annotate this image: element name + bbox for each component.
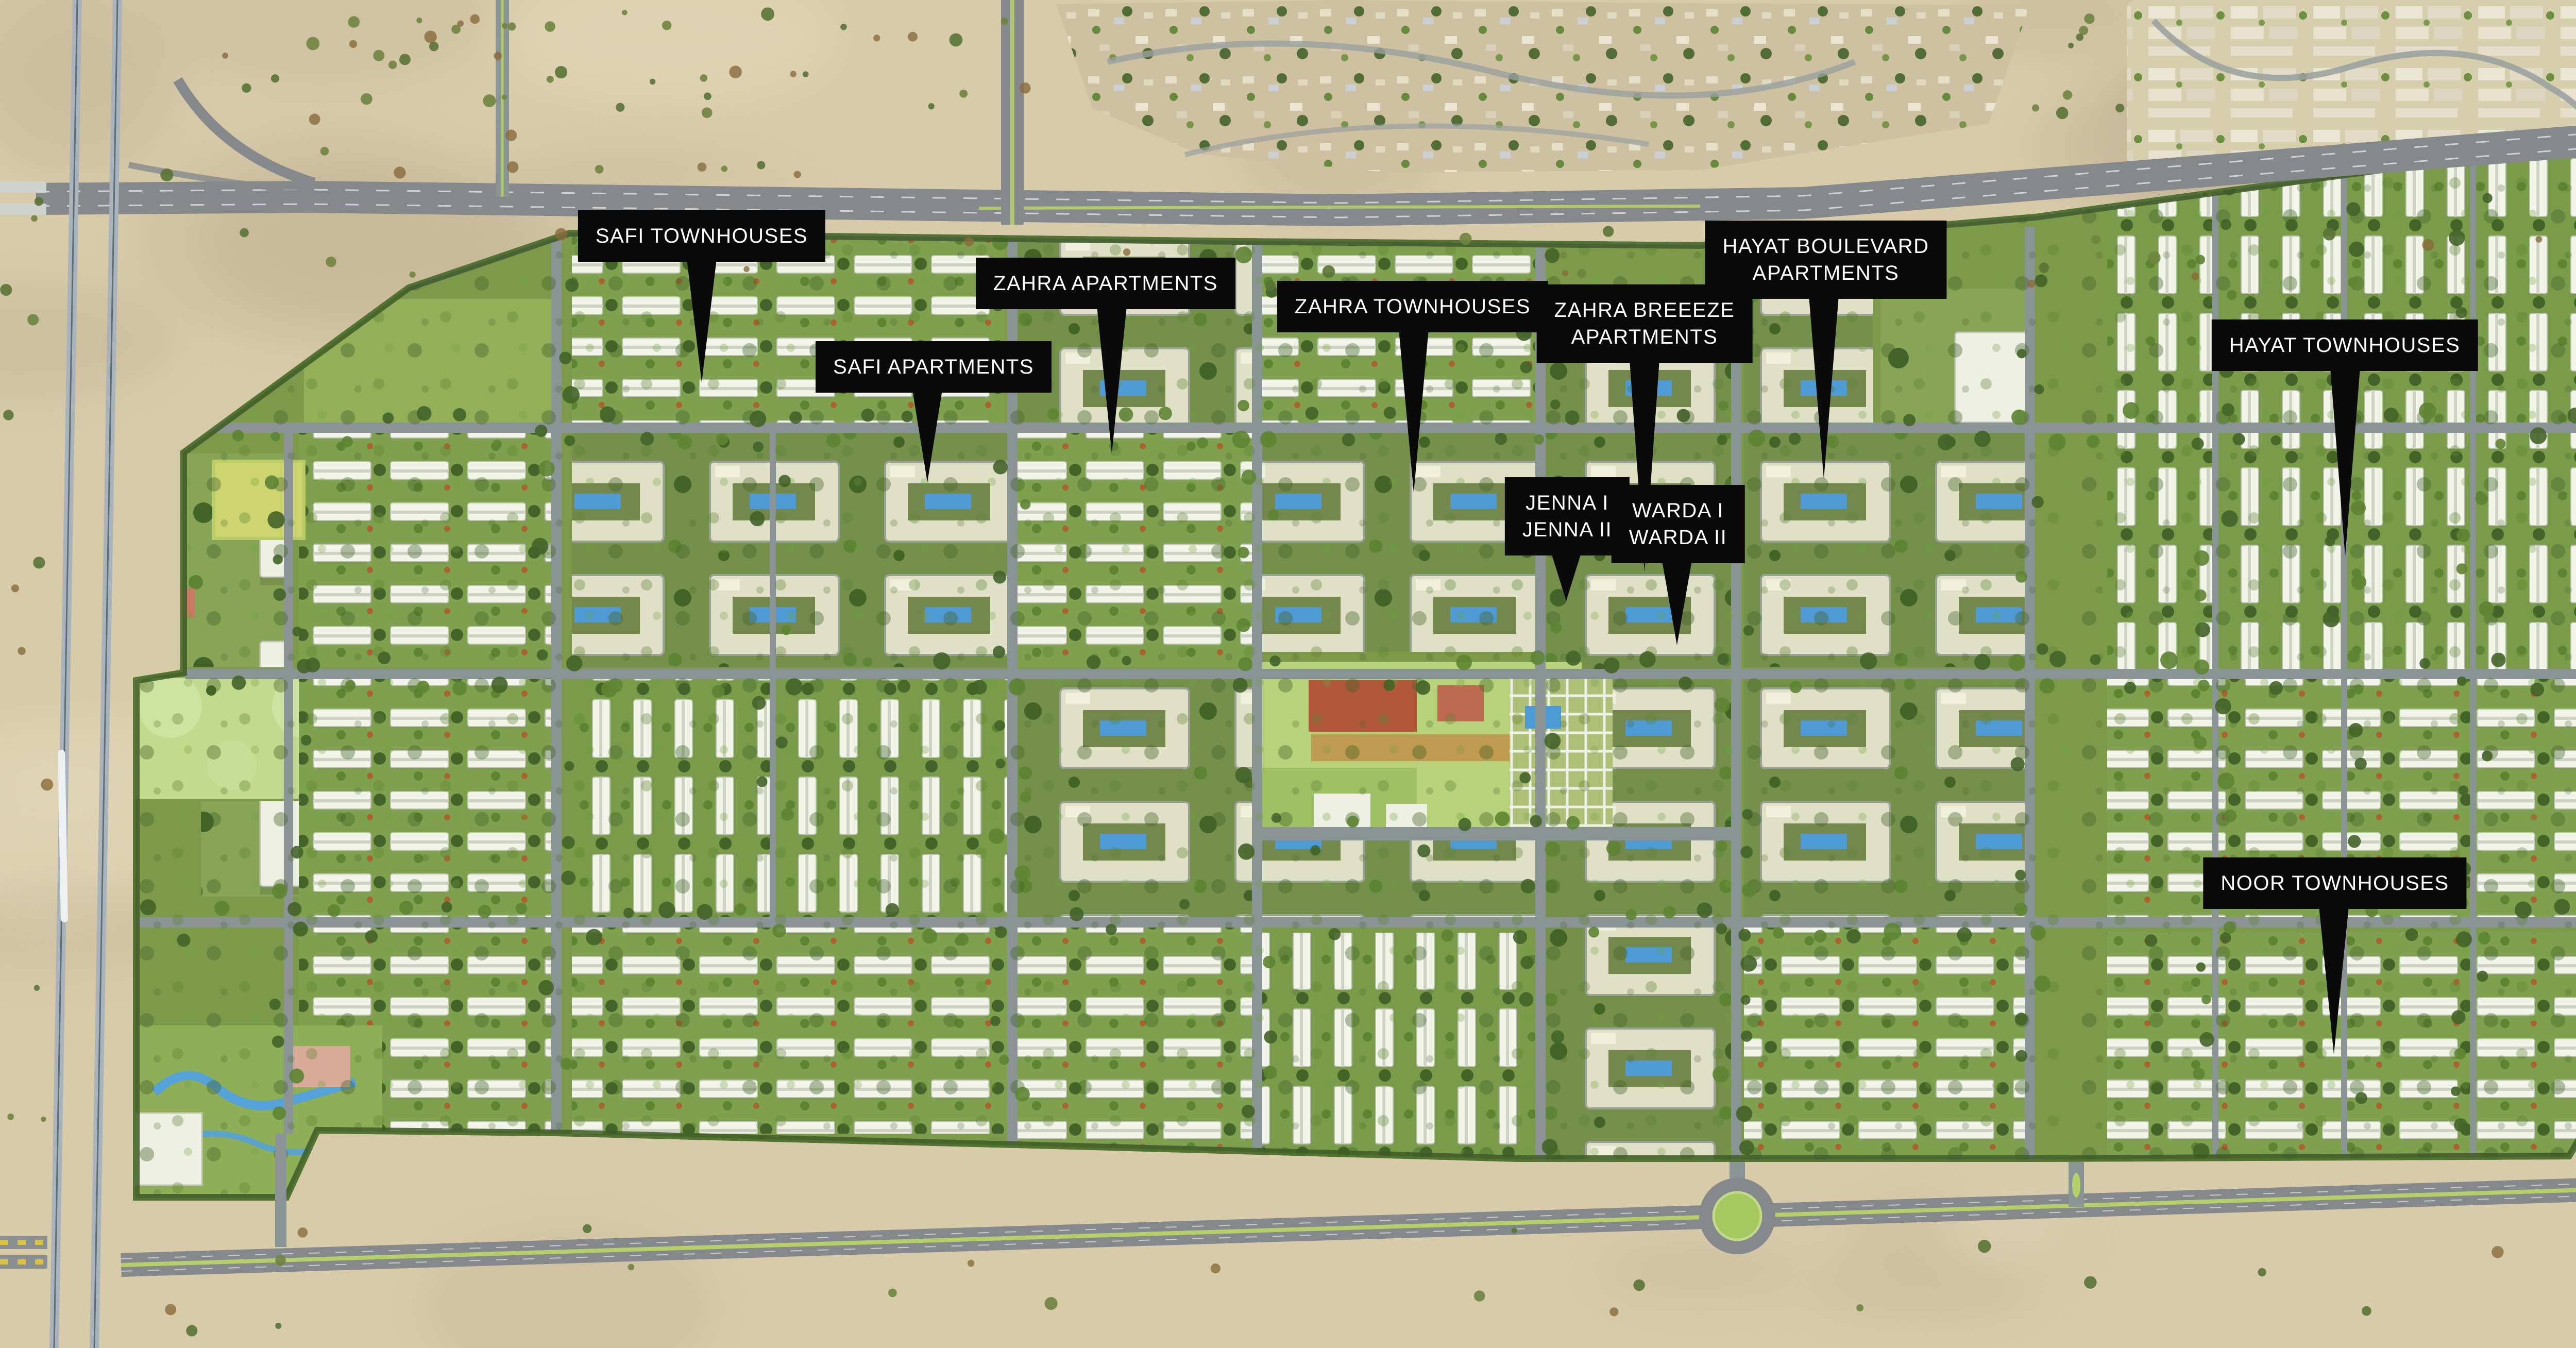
flag-pointer (681, 260, 722, 382)
flag-pointer (1803, 297, 1844, 479)
flag-pointer (1091, 307, 1132, 453)
flag-pointer (1546, 553, 1587, 601)
flag-label[interactable]: WARDA IWARDA II (1612, 485, 1745, 563)
flag-pointer (1393, 330, 1434, 493)
flag-label[interactable]: HAYAT BOULEVARDAPARTMENTS (1705, 221, 1946, 299)
flag-pointer (2313, 907, 2354, 1054)
flag-label[interactable]: HAYAT TOWNHOUSES (2212, 319, 2478, 371)
flag-pointer (1656, 561, 1698, 645)
flag-label[interactable]: ZAHRA TOWNHOUSES (1277, 281, 1548, 332)
masterplan-screenshot: SAFI TOWNHOUSES SAFI APARTMENTS ZAHRA AP… (0, 0, 2576, 1348)
flag-pointer (2325, 369, 2366, 557)
flag-label[interactable]: NOOR TOWNHOUSES (2203, 857, 2466, 909)
flag-pointer (907, 391, 948, 482)
flag-label[interactable]: SAFI APARTMENTS (816, 341, 1052, 393)
community-label-flags: SAFI TOWNHOUSES SAFI APARTMENTS ZAHRA AP… (0, 0, 2576, 1348)
flag-label[interactable]: SAFI TOWNHOUSES (578, 210, 825, 262)
flag-label[interactable]: ZAHRA APARTMENTS (976, 258, 1235, 309)
